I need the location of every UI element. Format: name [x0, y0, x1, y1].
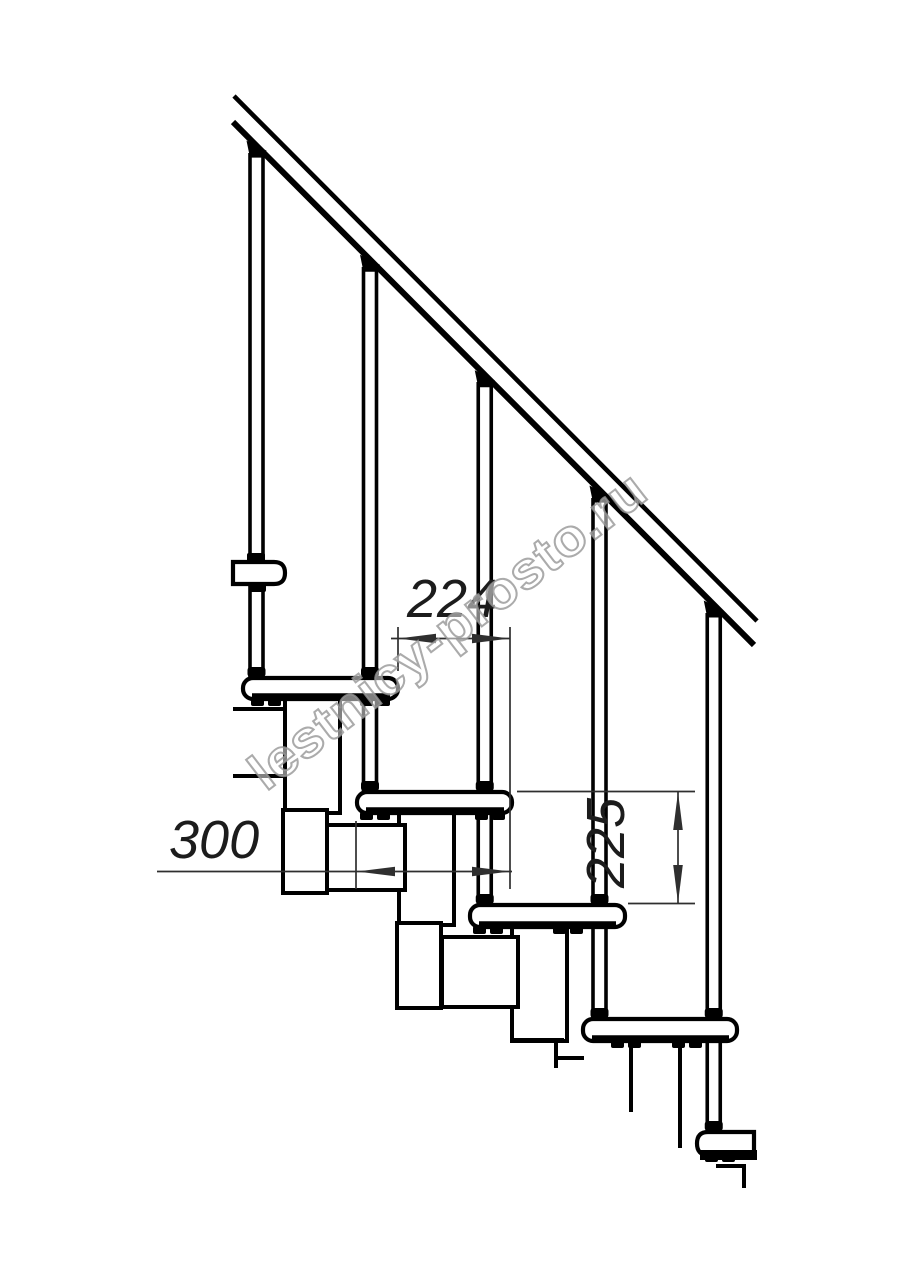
baluster-5	[707, 613, 720, 1135]
module-joint-2	[397, 923, 441, 1008]
module-under-step5-cut	[716, 1166, 744, 1188]
arrowhead-down	[673, 865, 683, 903]
module-neck-2	[399, 813, 454, 925]
dimension-value-225: 225	[576, 797, 636, 889]
watermark-text: lestnicy-prosto.ru	[238, 460, 658, 801]
module-box-4-cut	[556, 1042, 584, 1068]
handrail-top-edge	[234, 96, 757, 621]
module-box-2	[327, 825, 405, 890]
baluster-3	[478, 382, 491, 908]
staircase-drawing-canvas: 224 300 225 lestnicy-prosto.ru	[0, 0, 914, 1280]
module-joint-1	[283, 810, 327, 893]
bracket-body	[233, 562, 285, 584]
module-neck-4-cut	[631, 1042, 680, 1148]
dimension-riser-height: 225	[517, 791, 695, 904]
dimension-value-300: 300	[169, 810, 259, 870]
baluster-4	[593, 498, 606, 1022]
bracket-collar-bottom	[249, 583, 266, 592]
baluster-1	[250, 153, 263, 680]
staircase-side-elevation: 224 300 225 lestnicy-prosto.ru	[0, 0, 914, 1280]
upper-rail-bracket	[233, 553, 285, 592]
module-neck-3	[512, 927, 567, 1041]
module-box-3	[442, 937, 518, 1007]
arrowhead-up	[673, 792, 683, 830]
